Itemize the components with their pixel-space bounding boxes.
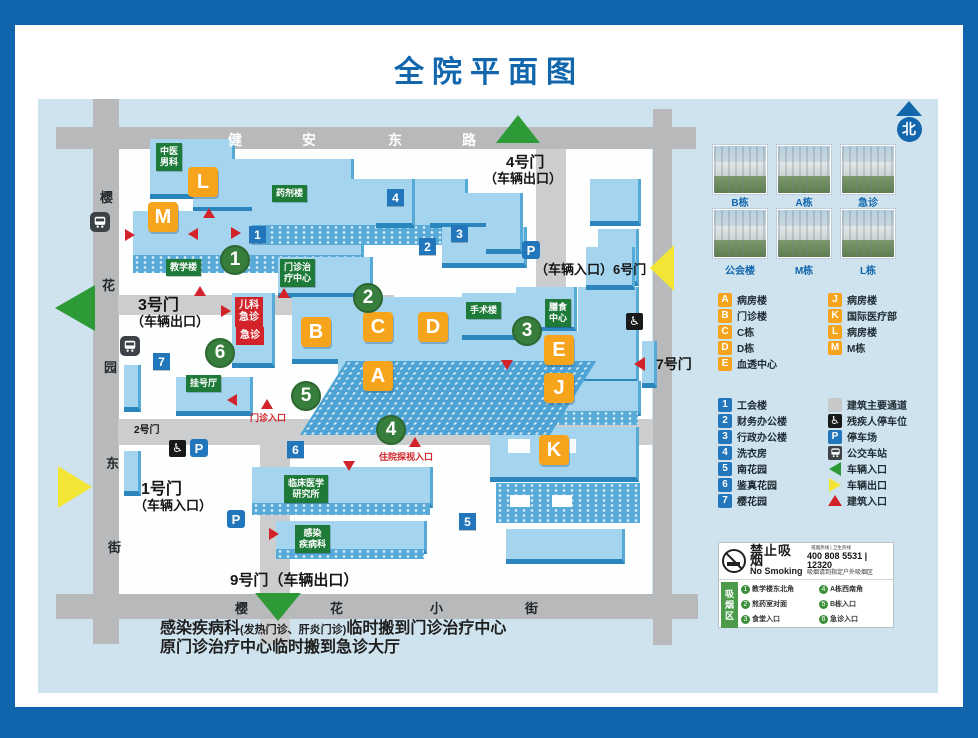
smoking-spot-number: 4	[819, 585, 828, 594]
building-letter-C: C	[363, 312, 393, 342]
legend-number-3-icon: 3	[718, 430, 732, 444]
street-west-1: 樱	[100, 187, 113, 206]
legend-letter-L-label: 病房楼	[847, 324, 877, 339]
legend-tri-up-red-label: 建筑入口	[847, 493, 887, 508]
no-smoking-title-en: No Smoking	[750, 566, 803, 576]
building-entrance-arrow	[227, 394, 237, 406]
gate-4-sub: （车辆出口）	[484, 168, 562, 187]
building-letter-J: J	[544, 373, 574, 403]
north-arrow-icon	[896, 101, 922, 116]
gate9-arrow-icon	[255, 593, 301, 621]
smoking-spot-number: 1	[741, 585, 750, 594]
smoking-spot-number: 6	[819, 615, 828, 624]
legend-number-2-label: 财务办公楼	[737, 413, 787, 428]
legend-letter-E: E血透中心	[718, 356, 777, 371]
bus-stop-icon	[90, 212, 110, 232]
label-inpatient-visit-entrance: 住院探视入口	[379, 450, 433, 463]
footnote-line2: 原门诊治疗中心临时搬到急诊大厅	[160, 639, 400, 656]
label-surgery-building: 手术楼	[466, 302, 501, 319]
legend-tri-right-yellow: 车辆出口	[828, 477, 887, 492]
legend-letter-B-icon: B	[718, 309, 732, 323]
label-clinical-research-institute: 临床医学 研究所	[284, 475, 328, 503]
street-jianan-3: 东	[388, 130, 402, 150]
smoking-spot-label: 教学楼东北角	[752, 584, 794, 594]
building-photo-A栋	[777, 145, 831, 194]
legend-bus-icon	[828, 446, 842, 460]
no-smoking-header: 禁止吸烟 No Smoking 戒烟热线 | 卫生热线 400 808 5531…	[719, 543, 893, 580]
disabled-parking-icon: ♿	[169, 440, 186, 457]
legend-letter-K-label: 国际医疗部	[847, 308, 897, 323]
building-photo-急诊	[841, 145, 895, 194]
legend-bus: 公交车站	[828, 445, 887, 460]
building-entrance-arrow	[261, 399, 273, 409]
gate-1-sub: （车辆入口）	[134, 495, 212, 514]
smoking-spot-6: 6急诊入口	[819, 613, 858, 625]
building-entrance-arrow	[221, 305, 231, 317]
building-number-1: 1	[249, 226, 266, 243]
building-block	[124, 365, 141, 412]
legend-tri-up-red-icon	[828, 494, 842, 508]
legend-letter-D: DD栋	[718, 340, 754, 355]
label-outpatient-entrance: 门诊入口	[250, 411, 286, 424]
legend-letter-M-icon: M	[828, 341, 842, 355]
legend-letter-A: A病房楼	[718, 292, 767, 307]
gate-6-label: （车辆入口）6号门	[535, 259, 646, 278]
street-south-2: 花	[330, 598, 343, 617]
building-number-6: 6	[287, 441, 304, 458]
building-entrance-arrow	[231, 227, 241, 239]
hotline-label-2: 卫生热线	[833, 545, 851, 550]
gate7-arrow-icon	[634, 357, 645, 371]
building-photo-label: 急诊	[841, 194, 895, 209]
legend-tri-left-green-icon	[828, 462, 842, 476]
legend-letter-C-label: C栋	[737, 324, 754, 339]
parking-icon: P	[190, 439, 208, 457]
bus-stop-icon	[120, 336, 140, 356]
building-letter-M: M	[148, 202, 178, 232]
site-number-5: 5	[291, 381, 321, 411]
building-letter-E: E	[544, 335, 574, 365]
legend-letter-M: MM栋	[828, 340, 865, 355]
label-emergency: 急诊	[236, 327, 264, 345]
gate-2-label: 2号门	[134, 421, 160, 436]
building-photo-B栋	[713, 145, 767, 194]
legend-number-6-label: 鉴真花园	[737, 477, 777, 492]
gate-9-label: 9号门（车辆出口）	[230, 569, 358, 590]
building-photo-label: 公会楼	[713, 262, 767, 277]
label-teaching-building: 教学楼	[166, 259, 201, 276]
smoking-spot-number: 3	[741, 615, 750, 624]
legend-letter-D-label: D栋	[737, 340, 754, 355]
building-block	[486, 193, 523, 254]
legend-letter-B-label: 门诊楼	[737, 308, 767, 323]
street-west-4: 东	[106, 453, 119, 472]
street-south-3: 小	[430, 598, 443, 617]
legend-letter-E-label: 血透中心	[737, 356, 777, 371]
street-south-4: 街	[525, 598, 538, 617]
footnote-line1-small: (发热门诊、肝炎门诊)	[240, 624, 346, 636]
legend-parking-icon: P	[828, 430, 842, 444]
north-label: 北	[897, 117, 922, 142]
legend-path-square: 建筑主要通道	[828, 397, 907, 412]
legend-number-2: 2财务办公楼	[718, 413, 787, 428]
building-entrance-arrow	[501, 360, 513, 370]
legend-number-2-icon: 2	[718, 414, 732, 428]
legend-letter-D-icon: D	[718, 341, 732, 355]
site-number-2: 2	[353, 283, 383, 313]
smoking-spot-number: 5	[819, 600, 828, 609]
legend-letter-B: B门诊楼	[718, 308, 767, 323]
legend-letter-A-label: 病房楼	[737, 292, 767, 307]
legend-number-4-icon: 4	[718, 446, 732, 460]
legend-path-square-icon	[828, 398, 842, 412]
site-number-6: 6	[205, 338, 235, 368]
legend-number-6: 6鉴真花园	[718, 477, 777, 492]
smoking-spot-label: A栋西南角	[830, 584, 863, 594]
legend-tri-up-red-shape	[828, 495, 842, 506]
street-south-1: 樱	[235, 598, 248, 617]
building-block	[552, 495, 572, 507]
street-jianan-2: 安	[302, 130, 316, 150]
no-smoking-sign: 禁止吸烟 No Smoking 戒烟热线 | 卫生热线 400 808 5531…	[718, 542, 894, 628]
legend-number-7-icon: 7	[718, 494, 732, 508]
legend-number-1: 1工会楼	[718, 397, 767, 412]
building-block	[430, 193, 491, 228]
smoking-spot-3: 3食堂入口	[741, 613, 780, 625]
smoking-spot-4: 4A栋西南角	[819, 583, 863, 595]
poster-page: 全院平面图 健安东路樱花园东街樱花小街4号门（车辆出口）（车辆入口）6号门7号门…	[15, 25, 963, 707]
smoking-spot-2: 2煎药室对面	[741, 598, 787, 610]
building-letter-A: A	[363, 361, 393, 391]
label-pediatric-emergency: 儿科 急诊	[235, 297, 263, 327]
smoking-spot-label: 急诊入口	[830, 614, 858, 624]
building-entrance-arrow	[409, 437, 421, 447]
legend-number-7-label: 樱花园	[737, 493, 767, 508]
legend-number-5-label: 南花园	[737, 461, 767, 476]
building-number-4: 4	[387, 189, 404, 206]
gate6-arrow-icon	[650, 245, 674, 291]
label-dietary-center: 膳食 中心	[545, 299, 571, 327]
building-block	[506, 529, 625, 564]
smoking-spot-5: 5B栋入口	[819, 598, 856, 610]
legend-number-6-icon: 6	[718, 478, 732, 492]
north-indicator: 北	[896, 101, 922, 142]
legend-number-4: 4洗衣房	[718, 445, 767, 460]
building-block	[510, 495, 530, 507]
legend-letter-C: CC栋	[718, 324, 754, 339]
legend-letter-J-icon: J	[828, 293, 842, 307]
street-west-2: 花	[102, 275, 115, 294]
building-number-5: 5	[459, 513, 476, 530]
building-entrance-arrow	[188, 228, 198, 240]
smoking-spot-label: B栋入口	[830, 599, 856, 609]
road-east-stub	[653, 619, 672, 645]
building-block	[252, 503, 430, 515]
map-footnote: 感染疾病科(发热门诊、肝炎门诊)临时搬到门诊治疗中心 原门诊治疗中心临时搬到急诊…	[160, 620, 506, 657]
legend-letter-E-icon: E	[718, 357, 732, 371]
legend-number-1-label: 工会楼	[737, 397, 767, 412]
building-photo-label: B栋	[713, 194, 767, 209]
building-letter-D: D	[418, 312, 448, 342]
label-registration-hall: 挂号厅	[186, 375, 221, 392]
street-west-3: 园	[104, 357, 117, 376]
building-entrance-arrow	[343, 461, 355, 471]
building-photo-label: M栋	[777, 262, 831, 277]
legend-bus-label: 公交车站	[847, 445, 887, 460]
health-hotline-phone: 12320	[807, 560, 832, 570]
legend-panel: 北 B栋A栋急诊公会楼M栋L栋 A病房楼B门诊楼CC栋DD栋E血透中心J病房楼K…	[710, 99, 938, 693]
building-block	[252, 467, 433, 508]
gate3-arrow-icon	[55, 285, 95, 331]
label-outpatient-treatment-center: 门诊治 疗中心	[280, 259, 315, 287]
gate-3-sub: （车辆出口）	[131, 311, 209, 330]
legend-wheelchair: ♿残疾人停车位	[828, 413, 907, 428]
site-number-4: 4	[376, 415, 406, 445]
no-smoking-icon	[722, 549, 746, 573]
building-entrance-arrow	[203, 208, 215, 218]
legend-tri-right-yellow-label: 车辆出口	[847, 477, 887, 492]
legend-parking: P停车场	[828, 429, 877, 444]
footnote-line1-rest: 临时搬到门诊治疗中心	[346, 620, 506, 637]
smoking-spot-1: 1教学楼东北角	[741, 583, 794, 595]
building-photo-L栋	[841, 209, 895, 258]
building-entrance-arrow	[125, 229, 135, 241]
road-south	[56, 594, 698, 619]
page-title: 全院平面图	[15, 47, 963, 91]
legend-number-1-icon: 1	[718, 398, 732, 412]
smoking-spot-label: 煎药室对面	[752, 599, 787, 609]
legend-letter-K: K国际医疗部	[828, 308, 897, 323]
building-photo-label: A栋	[777, 194, 831, 209]
gate1-arrow-icon	[58, 466, 92, 508]
legend-tri-right-yellow-shape	[829, 478, 841, 492]
legend-tri-left-green-label: 车辆入口	[847, 461, 887, 476]
building-number-7: 7	[153, 353, 170, 370]
legend-tri-left-green: 车辆入口	[828, 461, 887, 476]
legend-wheelchair-label: 残疾人停车位	[847, 413, 907, 428]
smoking-zone-label: 吸烟区	[721, 582, 738, 628]
disabled-parking-icon: ♿	[626, 313, 643, 330]
street-jianan-4: 路	[462, 130, 476, 150]
label-infectious-disease-dept: 感染 疾病科	[295, 525, 330, 553]
building-entrance-arrow	[278, 288, 290, 298]
legend-parking-label: 停车场	[847, 429, 877, 444]
legend-number-5-icon: 5	[718, 462, 732, 476]
building-number-2: 2	[419, 238, 436, 255]
legend-tri-up-red: 建筑入口	[828, 493, 887, 508]
no-smoking-title-cn: 禁止吸烟	[750, 546, 803, 566]
no-smoking-note: 吸烟请到指定户外吸烟区	[807, 570, 890, 577]
hotline-label-1: 戒烟热线	[811, 545, 829, 550]
legend-tri-right-yellow-icon	[828, 478, 842, 492]
smoking-spot-label: 食堂入口	[752, 614, 780, 624]
building-number-3: 3	[451, 225, 468, 242]
legend-tri-left-green-shape	[829, 462, 841, 476]
gate4-arrow-icon	[496, 115, 540, 143]
building-block	[124, 451, 141, 496]
building-letter-K: K	[539, 435, 569, 465]
legend-number-7: 7樱花园	[718, 493, 767, 508]
site-number-1: 1	[220, 245, 250, 275]
building-letter-L: L	[188, 167, 218, 197]
legend-letter-L: L病房楼	[828, 324, 877, 339]
gate-7-label: 7号门	[656, 354, 692, 374]
legend-wheelchair-icon: ♿	[828, 414, 842, 428]
label-pharmacy-building: 药剂楼	[272, 185, 307, 202]
legend-letter-A-icon: A	[718, 293, 732, 307]
street-jianan-1: 健	[228, 130, 242, 150]
legend-number-5: 5南花园	[718, 461, 767, 476]
site-number-3: 3	[512, 316, 542, 346]
building-block	[590, 179, 641, 226]
building-entrance-arrow	[269, 528, 279, 540]
legend-letter-M-label: M栋	[847, 340, 865, 355]
building-photo-label: L栋	[841, 262, 895, 277]
building-entrance-arrow	[194, 286, 206, 296]
street-west-5: 街	[108, 537, 121, 556]
parking-icon: P	[522, 241, 540, 259]
legend-number-3-label: 行政办公楼	[737, 429, 787, 444]
building-photo-M栋	[777, 209, 831, 258]
legend-letter-J-label: 病房楼	[847, 292, 877, 307]
campus-map: 健安东路樱花园东街樱花小街4号门（车辆出口）（车辆入口）6号门7号门3号门（车辆…	[38, 99, 710, 693]
legend-path-square-label: 建筑主要通道	[847, 397, 907, 412]
legend-number-3: 3行政办公楼	[718, 429, 787, 444]
building-photo-公会楼	[713, 209, 767, 258]
parking-icon: P	[227, 510, 245, 528]
legend-letter-C-icon: C	[718, 325, 732, 339]
building-block	[508, 439, 530, 453]
smoking-spot-number: 2	[741, 600, 750, 609]
map-board: 健安东路樱花园东街樱花小街4号门（车辆出口）（车辆入口）6号门7号门3号门（车辆…	[38, 99, 938, 693]
building-letter-B: B	[301, 317, 331, 347]
legend-letter-L-icon: L	[828, 325, 842, 339]
footnote-line1-main: 感染疾病科	[160, 620, 240, 637]
label-tcm-male-dept: 中医 男科	[156, 143, 182, 171]
legend-number-4-label: 洗衣房	[737, 445, 767, 460]
legend-letter-K-icon: K	[828, 309, 842, 323]
legend-letter-J: J病房楼	[828, 292, 877, 307]
